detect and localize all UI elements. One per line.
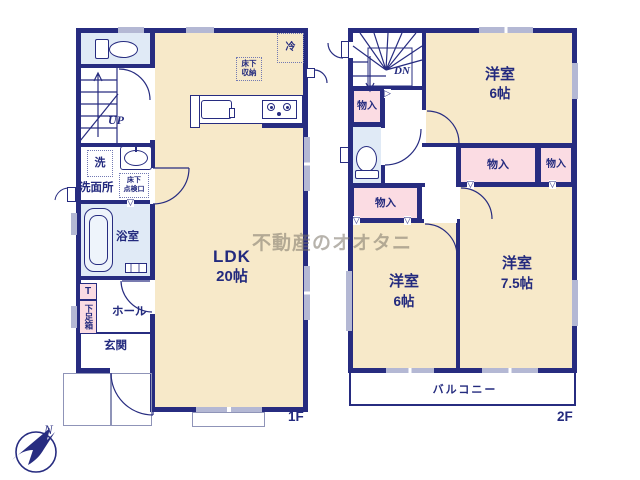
floor-plan: 冷 床下 収納 洗 床下 点検口 T 下足箱 LDK 20帖 洗面所 浴室 ホー… <box>0 0 640 480</box>
compass-icon: N <box>10 420 66 478</box>
watermark: 不動産のオオタニ <box>252 228 412 255</box>
compass-north-label: N <box>43 422 54 437</box>
